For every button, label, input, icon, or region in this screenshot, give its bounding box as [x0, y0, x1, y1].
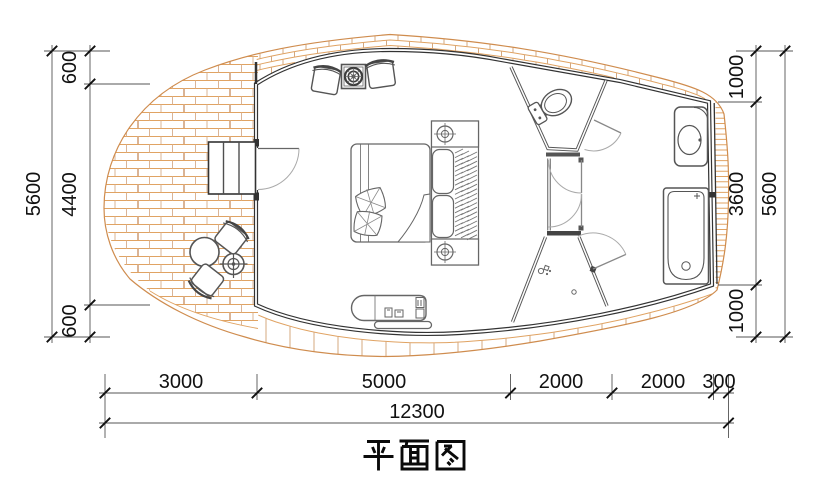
svg-text:2000: 2000 [539, 371, 584, 393]
svg-text:600: 600 [59, 51, 81, 84]
svg-text:300: 300 [702, 371, 735, 393]
svg-text:600: 600 [59, 304, 81, 337]
svg-text:5600: 5600 [23, 172, 45, 217]
svg-text:4400: 4400 [59, 172, 81, 217]
svg-text:12300: 12300 [389, 401, 445, 423]
svg-text:3600: 3600 [726, 172, 748, 217]
svg-text:2000: 2000 [641, 371, 686, 393]
svg-text:3000: 3000 [159, 371, 204, 393]
svg-text:1000: 1000 [726, 289, 748, 334]
svg-text:5000: 5000 [362, 371, 407, 393]
svg-text:1000: 1000 [726, 55, 748, 100]
svg-text:5600: 5600 [759, 172, 781, 217]
